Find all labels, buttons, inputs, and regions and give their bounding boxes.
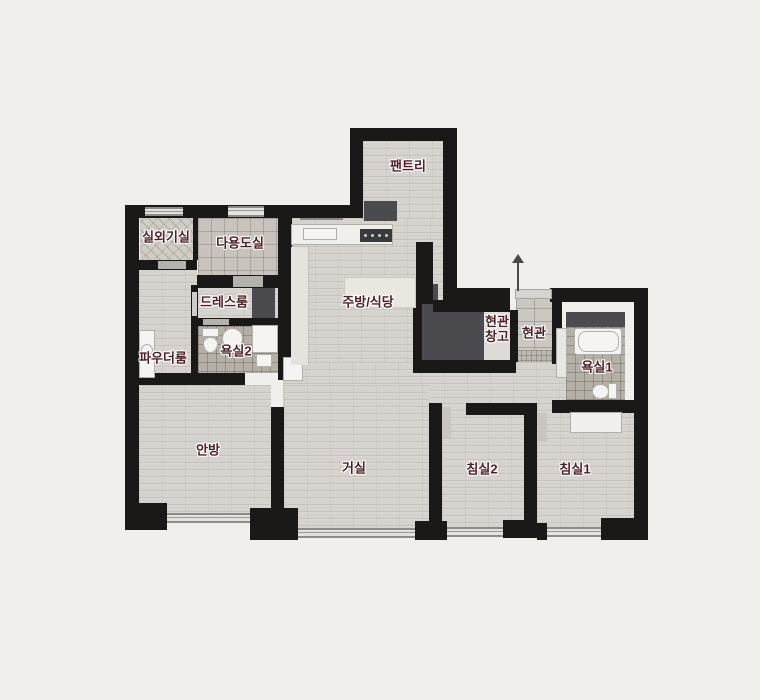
dress-room-wardrobe — [252, 285, 275, 322]
bath2-door — [203, 319, 229, 325]
bath1-toilet-tank — [608, 383, 617, 399]
wall-right-outer — [634, 288, 648, 540]
pier-master-living-corner — [250, 508, 298, 540]
bed1-closet — [570, 412, 622, 433]
entry-floor — [516, 295, 552, 350]
living-room-floor — [284, 385, 429, 528]
wall-pantry-right — [443, 128, 457, 302]
bed1-window — [547, 527, 601, 537]
wall-storage-east — [510, 310, 518, 362]
living-label: 거실 — [342, 462, 366, 477]
outdoor-unit-label: 실외기실 — [142, 231, 190, 246]
bed2-window — [447, 527, 503, 537]
entry-label: 현관 — [522, 327, 546, 342]
entry-storage-label: 현관 창고 — [485, 315, 509, 345]
bath1-shelf — [566, 312, 625, 327]
bed1-door-leaf — [538, 413, 547, 442]
bath1-door-leaf — [556, 328, 567, 378]
bath1-toilet-bowl — [592, 384, 609, 399]
pier-bed1-bottom-right — [601, 518, 648, 540]
bath1-label: 욕실1 — [581, 361, 612, 376]
kitchen-stove — [360, 229, 392, 242]
burner-dot — [385, 234, 388, 237]
entry-step-floor — [516, 350, 552, 362]
dress-corridor-door — [192, 292, 197, 316]
wall-entry-zone-bottom — [413, 360, 516, 373]
pantry-fridge-box — [364, 201, 397, 221]
kitchen-island — [291, 247, 309, 365]
kitchen-label: 주방/식당 — [342, 296, 393, 311]
bath2-vanity — [252, 325, 278, 353]
bath2-shelf — [256, 354, 272, 367]
dress-label: 드레스룸 — [200, 296, 248, 311]
pier-bed2-bed1 — [503, 520, 537, 538]
powder-label: 파우더룸 — [139, 352, 187, 367]
entry-arrow-icon — [512, 254, 524, 263]
bed2-door-leaf — [442, 407, 451, 438]
floor-plan-canvas: 팬트리 실외기실 다용도실 드레스룸 주방/식당 파우더룸 욕실2 현관 창고 … — [0, 0, 760, 700]
master-label: 안방 — [196, 444, 220, 459]
wall-bed2-top — [466, 403, 535, 415]
entry-arrow-line — [517, 262, 519, 291]
wall-master-living-divider — [271, 407, 284, 517]
pier-bed1-bottom-left — [537, 523, 547, 540]
bath2-toilet-tank — [202, 328, 219, 337]
wall-bed2-west — [429, 403, 442, 527]
entry-door-sill — [515, 289, 552, 299]
bath1-tub-inner — [578, 331, 619, 352]
burner-dot — [364, 234, 367, 237]
wall-outdoor-utility-divider — [193, 218, 198, 260]
pier-master-bottom-left — [125, 503, 167, 530]
wall-pantry-left — [350, 128, 363, 218]
bed2-label: 침실2 — [466, 463, 497, 478]
outdoor-unit-vent — [145, 207, 183, 216]
utility-dress-door — [233, 276, 263, 287]
pier-living-bed2 — [415, 521, 447, 540]
utility-label: 다용도실 — [216, 237, 264, 252]
burner-dot — [371, 234, 374, 237]
bath1-tub — [574, 328, 622, 355]
wall-pantry-top — [350, 128, 457, 141]
outdoor-unit-door — [158, 261, 186, 269]
bed1-label: 침실1 — [559, 463, 590, 478]
kitchen-sink — [303, 228, 337, 240]
utility-window — [228, 206, 264, 217]
master-window — [167, 513, 250, 523]
wall-closet-top-band — [433, 300, 510, 312]
wall-left-outer — [125, 205, 139, 530]
bath2-label: 욕실2 — [220, 345, 251, 360]
pantry-label: 팬트리 — [390, 160, 426, 175]
wall-kitchen-west — [278, 218, 292, 380]
wall-bed1-west — [524, 403, 537, 527]
living-window — [298, 528, 415, 538]
entry-closet-block — [438, 310, 484, 360]
burner-dot — [378, 234, 381, 237]
